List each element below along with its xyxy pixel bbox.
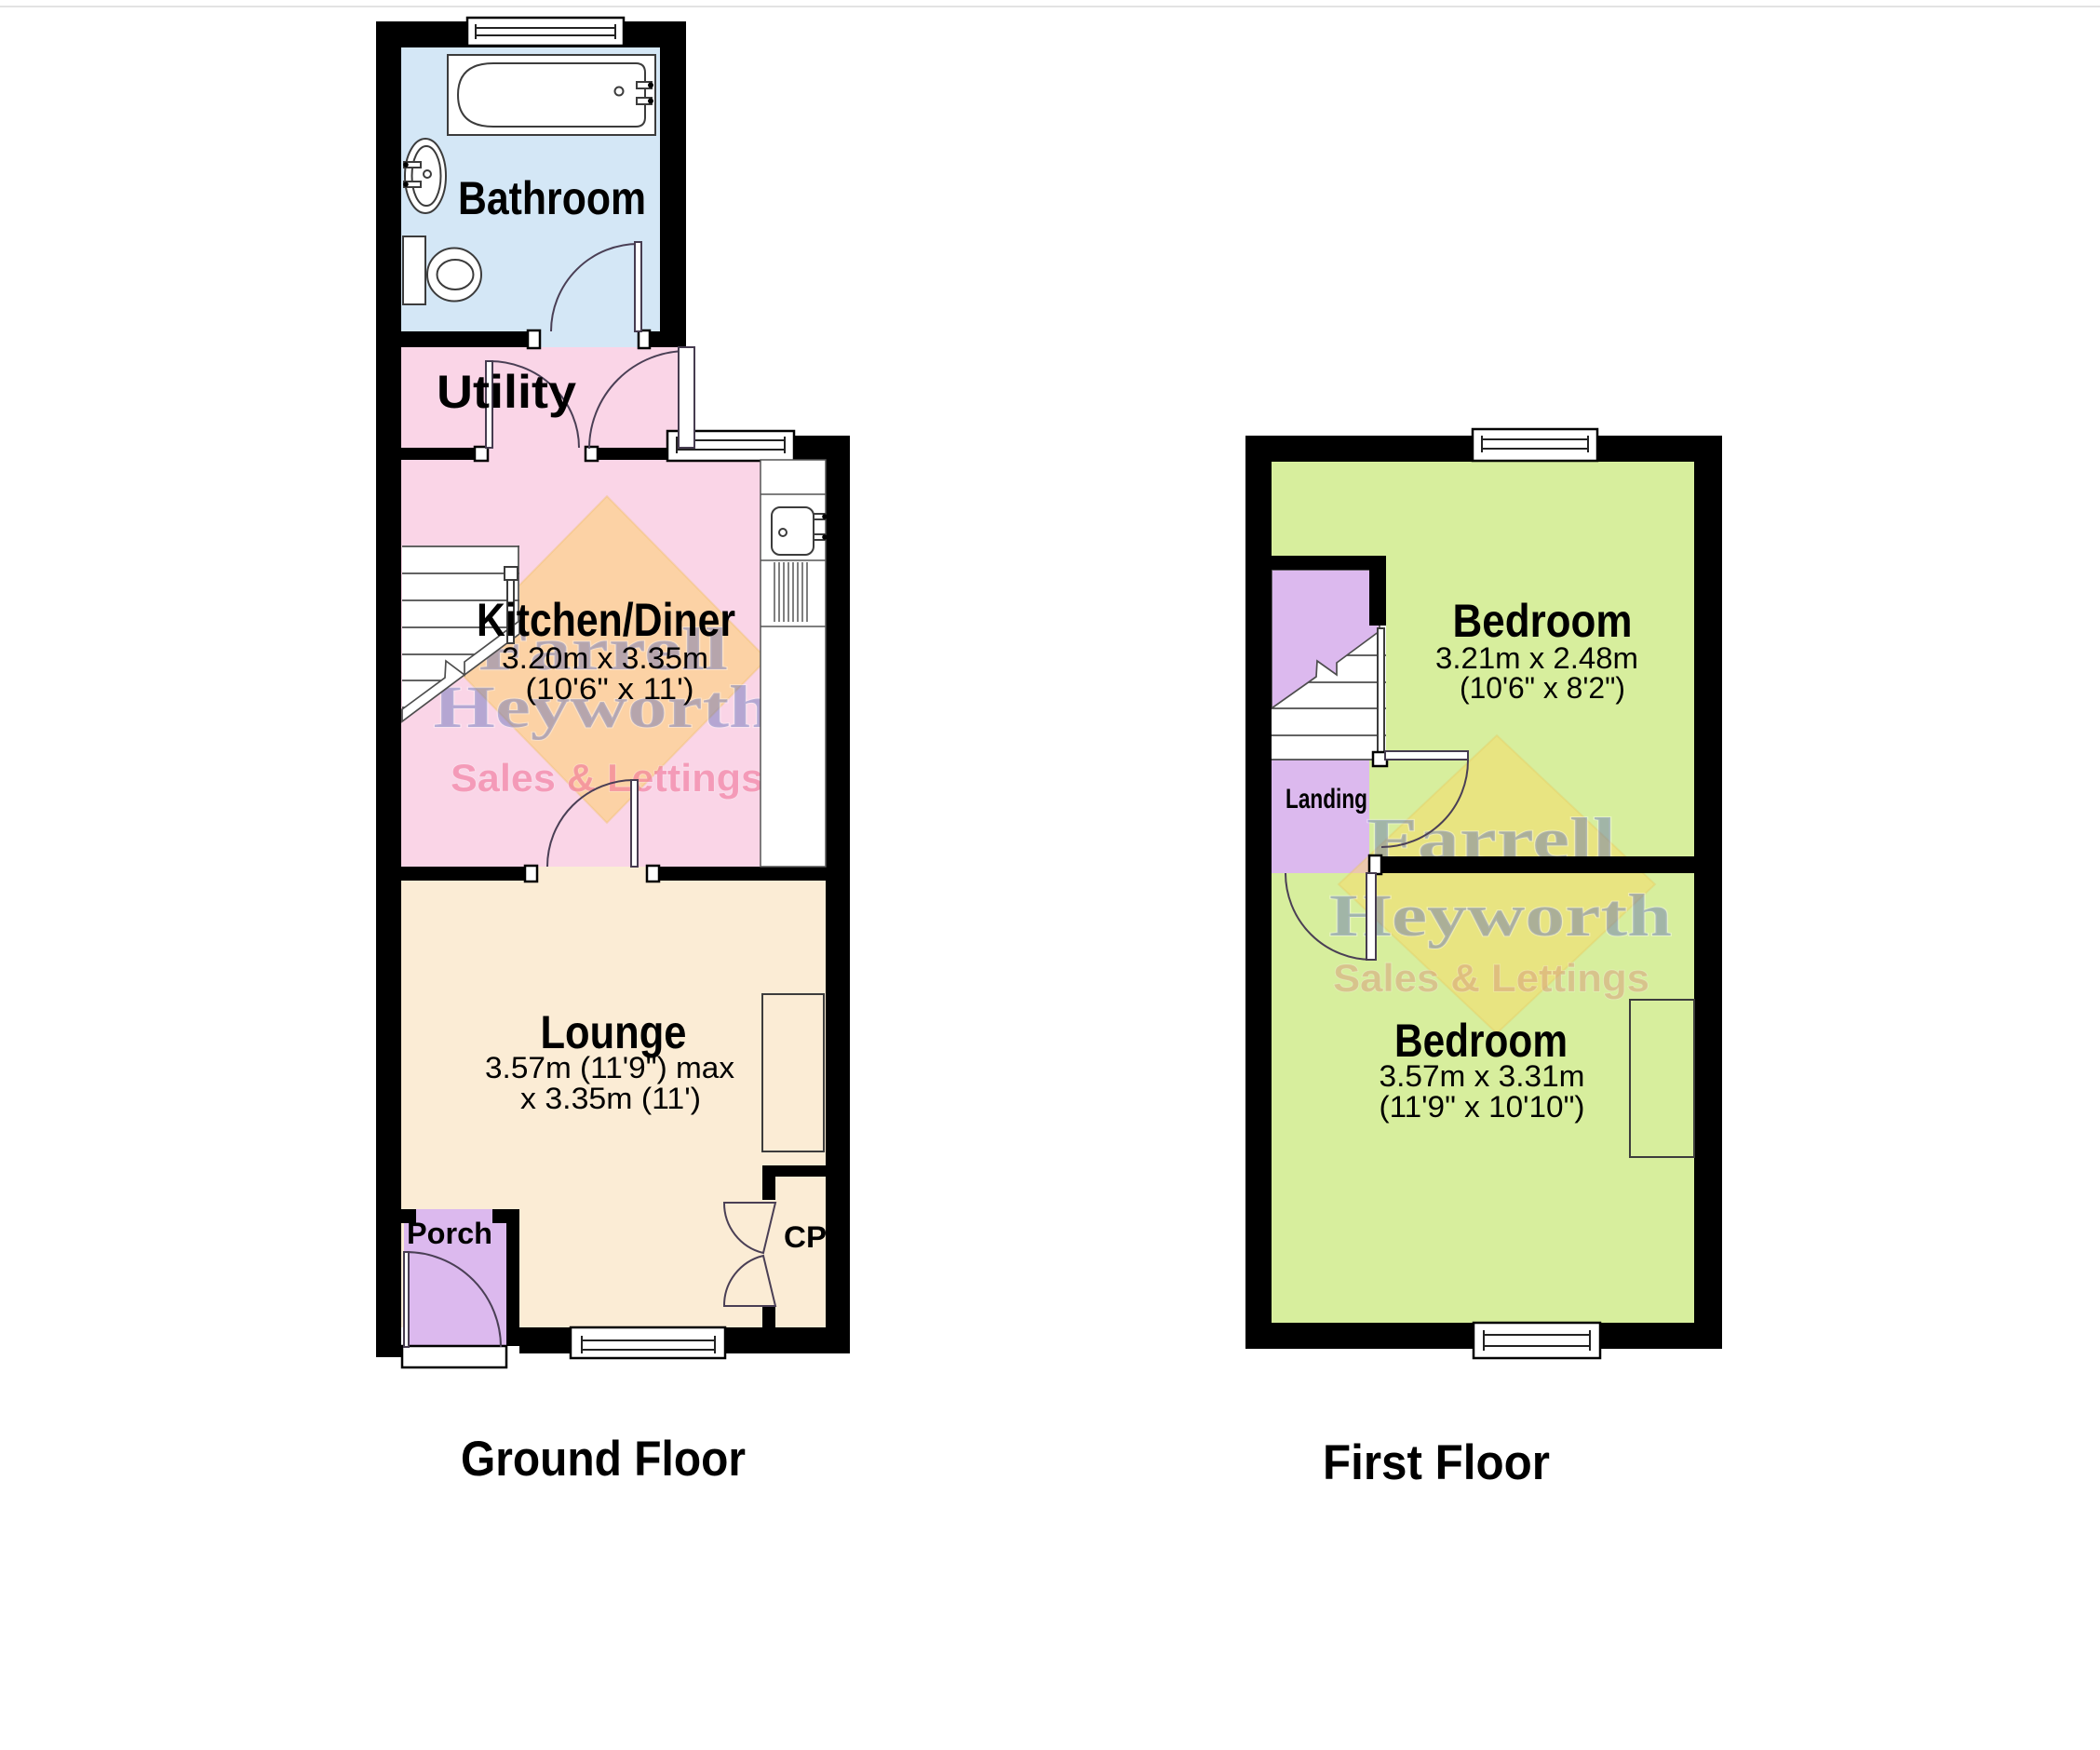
svg-text:Porch: Porch [407, 1217, 492, 1250]
svg-text:Kitchen/Diner: Kitchen/Diner [477, 594, 735, 646]
svg-text:Landing: Landing [1286, 784, 1367, 814]
svg-text:Utility: Utility [437, 366, 576, 418]
svg-text:First Floor: First Floor [1323, 1435, 1550, 1490]
svg-text:(10'6" x 11'): (10'6" x 11') [526, 672, 694, 706]
svg-text:Sales & Lettings: Sales & Lettings [1333, 956, 1649, 1000]
svg-text:x 3.35m (11'): x 3.35m (11') [520, 1082, 701, 1115]
svg-text:3.57m x 3.31m: 3.57m x 3.31m [1380, 1059, 1585, 1093]
svg-text:3.21m x 2.48m: 3.21m x 2.48m [1435, 641, 1638, 675]
svg-text:CPD: CPD [784, 1220, 849, 1254]
svg-text:(11'9" x 10'10"): (11'9" x 10'10") [1380, 1090, 1585, 1124]
svg-text:Sales & Lettings: Sales & Lettings [451, 756, 763, 800]
svg-text:3.57m (11'9") max: 3.57m (11'9") max [485, 1051, 734, 1084]
svg-text:Heyworth: Heyworth [1329, 882, 1672, 949]
svg-text:(10'6" x 8'2"): (10'6" x 8'2") [1460, 671, 1625, 705]
svg-text:Bedroom: Bedroom [1453, 595, 1633, 647]
svg-text:3.20m x 3.35m: 3.20m x 3.35m [502, 641, 708, 675]
svg-text:Ground Floor: Ground Floor [461, 1432, 746, 1487]
svg-text:Bathroom: Bathroom [458, 172, 646, 224]
